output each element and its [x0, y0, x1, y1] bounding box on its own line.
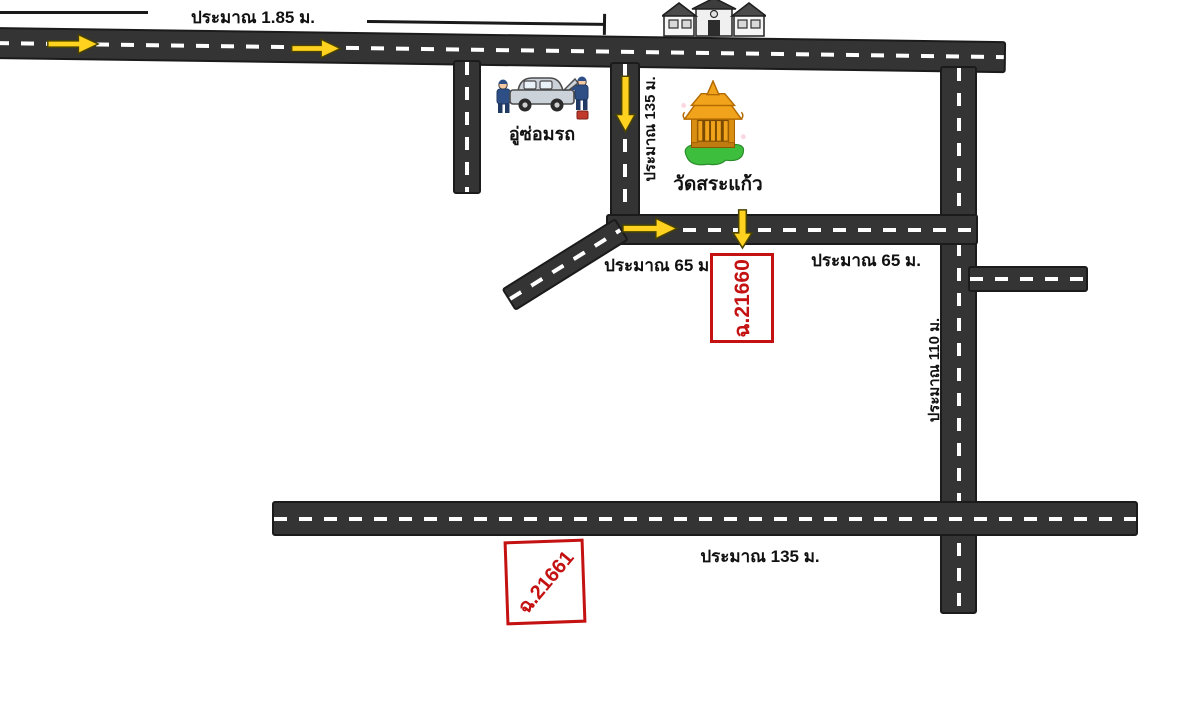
arrow-right-icon: [46, 31, 100, 57]
house-icon: [662, 0, 766, 38]
bottom-distance-label: ประมาณ 135 ม.: [678, 543, 842, 570]
measure-end-tick: [603, 14, 606, 35]
arrow-down-icon: [731, 208, 754, 250]
car-repair-icon: [494, 70, 592, 122]
temple-label: วัดสระแก้ว: [668, 169, 768, 199]
parcel-21660-label: ฉ.21660: [726, 259, 759, 338]
parcel-box-21661: ฉ.21661: [504, 539, 587, 626]
right-road-distance-label: ประมาณ 110 ม.: [922, 312, 946, 428]
garage-label: อู่ซ่อมรถ: [492, 119, 592, 148]
east-branch-road: [968, 266, 1088, 292]
garage-side-road: [453, 60, 481, 194]
soi-distance-label: ประมาณ 135 ม.: [638, 71, 662, 187]
bottom-road: [272, 501, 1138, 536]
middle-right-distance-label: ประมาณ 65 ม.: [806, 247, 926, 274]
parcel-21661-label: ฉ.21661: [509, 543, 582, 621]
map-canvas: ประมาณ 1.85 ม.: [0, 0, 1200, 710]
top-measure-line-left: [0, 11, 148, 14]
top-measure-line-right: [367, 20, 605, 26]
arrow-right-icon: [621, 215, 679, 242]
thai-temple-icon: [678, 80, 748, 170]
middle-left-distance-label: ประมาณ 65 ม.: [600, 252, 718, 279]
arrow-right-icon: [290, 36, 342, 61]
parcel-box-21660: ฉ.21660: [710, 253, 774, 343]
arrow-down-icon: [614, 73, 637, 135]
main-road-top: [0, 27, 1006, 73]
top-distance-label: ประมาณ 1.85 ม.: [168, 4, 338, 31]
